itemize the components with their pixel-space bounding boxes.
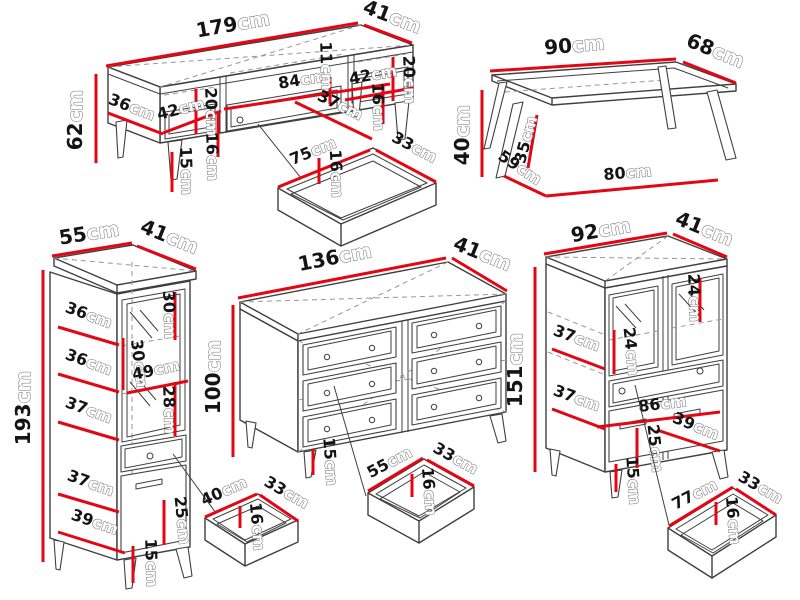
dresser-leg — [246, 421, 256, 448]
tall-cabinet-drawer-detail: 40cm 33cm 16cm — [173, 454, 312, 566]
highboard-leg — [550, 449, 560, 476]
dim-dr-width: 136cm — [296, 238, 374, 276]
dim-table-base-width: 80cm — [603, 161, 653, 184]
tv-stand: 179cm 41cm 62cm 36cm 42cm 20cm 16cm 15cm… — [63, 0, 440, 246]
dim-tv-right-drawer-height: 16cm — [368, 82, 389, 131]
dresser: 136cm 41cm 100cm 15cm 55cm 33cm 16cm — [201, 231, 515, 543]
highboard-leg — [712, 450, 728, 479]
dim-tc-height: 193cm — [11, 371, 35, 445]
dim-tv-left-height: 20cm — [201, 87, 222, 136]
dresser-leg — [490, 414, 506, 443]
diagram-canvas: 179cm 41cm 62cm 36cm 42cm 20cm 16cm 15cm… — [0, 0, 800, 600]
dim-hb-width: 92cm — [569, 213, 633, 247]
tv-leg — [116, 120, 127, 158]
tall-cabinet-leg — [176, 547, 192, 578]
dim-tv-width: 179cm — [194, 6, 271, 43]
dim-hb-door-height: 25cm — [643, 423, 667, 473]
dim-hb-height: 151cm — [503, 333, 527, 407]
table-leg — [707, 90, 736, 160]
table-leg — [484, 82, 507, 149]
dim-tc-top-compartment: 30cm — [159, 290, 180, 339]
dim-table-height: 40cm — [450, 105, 474, 166]
dim-tv-right-height: 20cm — [399, 55, 420, 104]
dim-tv-left-drawer-height: 16cm — [202, 132, 223, 181]
highboard-drawer-knob — [697, 368, 703, 374]
tv-drawer-knob — [237, 117, 243, 123]
highboard: 92cm 41cm 151cm 24cm 24cm 37cm 37cm 86cm… — [503, 206, 786, 578]
tall-cabinet-drawer-knob — [147, 453, 153, 459]
dim-tc-lower-compartment: 28cm — [159, 385, 180, 434]
dim-hb-leg-height: 15cm — [622, 456, 644, 506]
dim-tv-drawer-height: 16cm — [326, 149, 348, 198]
dim-tv-height: 62cm — [63, 90, 87, 151]
dim-tv-niche-top-height: 11cm — [316, 41, 337, 90]
coffee-table: 90cm 68cm 40cm 59cm 35cm 80cm — [450, 28, 748, 196]
furniture-dimension-diagram: 179cm 41cm 62cm 36cm 42cm 20cm 16cm 15cm… — [0, 0, 800, 600]
highboard-drawer-knob — [619, 388, 625, 394]
dim-tc-leg-height: 15cm — [141, 538, 162, 587]
dresser-outline — [240, 262, 506, 478]
dim-dr-height: 100cm — [201, 340, 225, 414]
dim-tc-top-width: 55cm — [57, 216, 121, 249]
tall-cabinet-leg — [54, 540, 64, 570]
dim-hb-right-glass: 24cm — [684, 273, 705, 322]
dim-table-base-width-line — [546, 180, 718, 196]
dim-dr-leg-height: 15cm — [319, 437, 341, 487]
dim-tv-leg-height: 15cm — [176, 146, 197, 195]
dim-table-top-width: 90cm — [543, 30, 605, 59]
